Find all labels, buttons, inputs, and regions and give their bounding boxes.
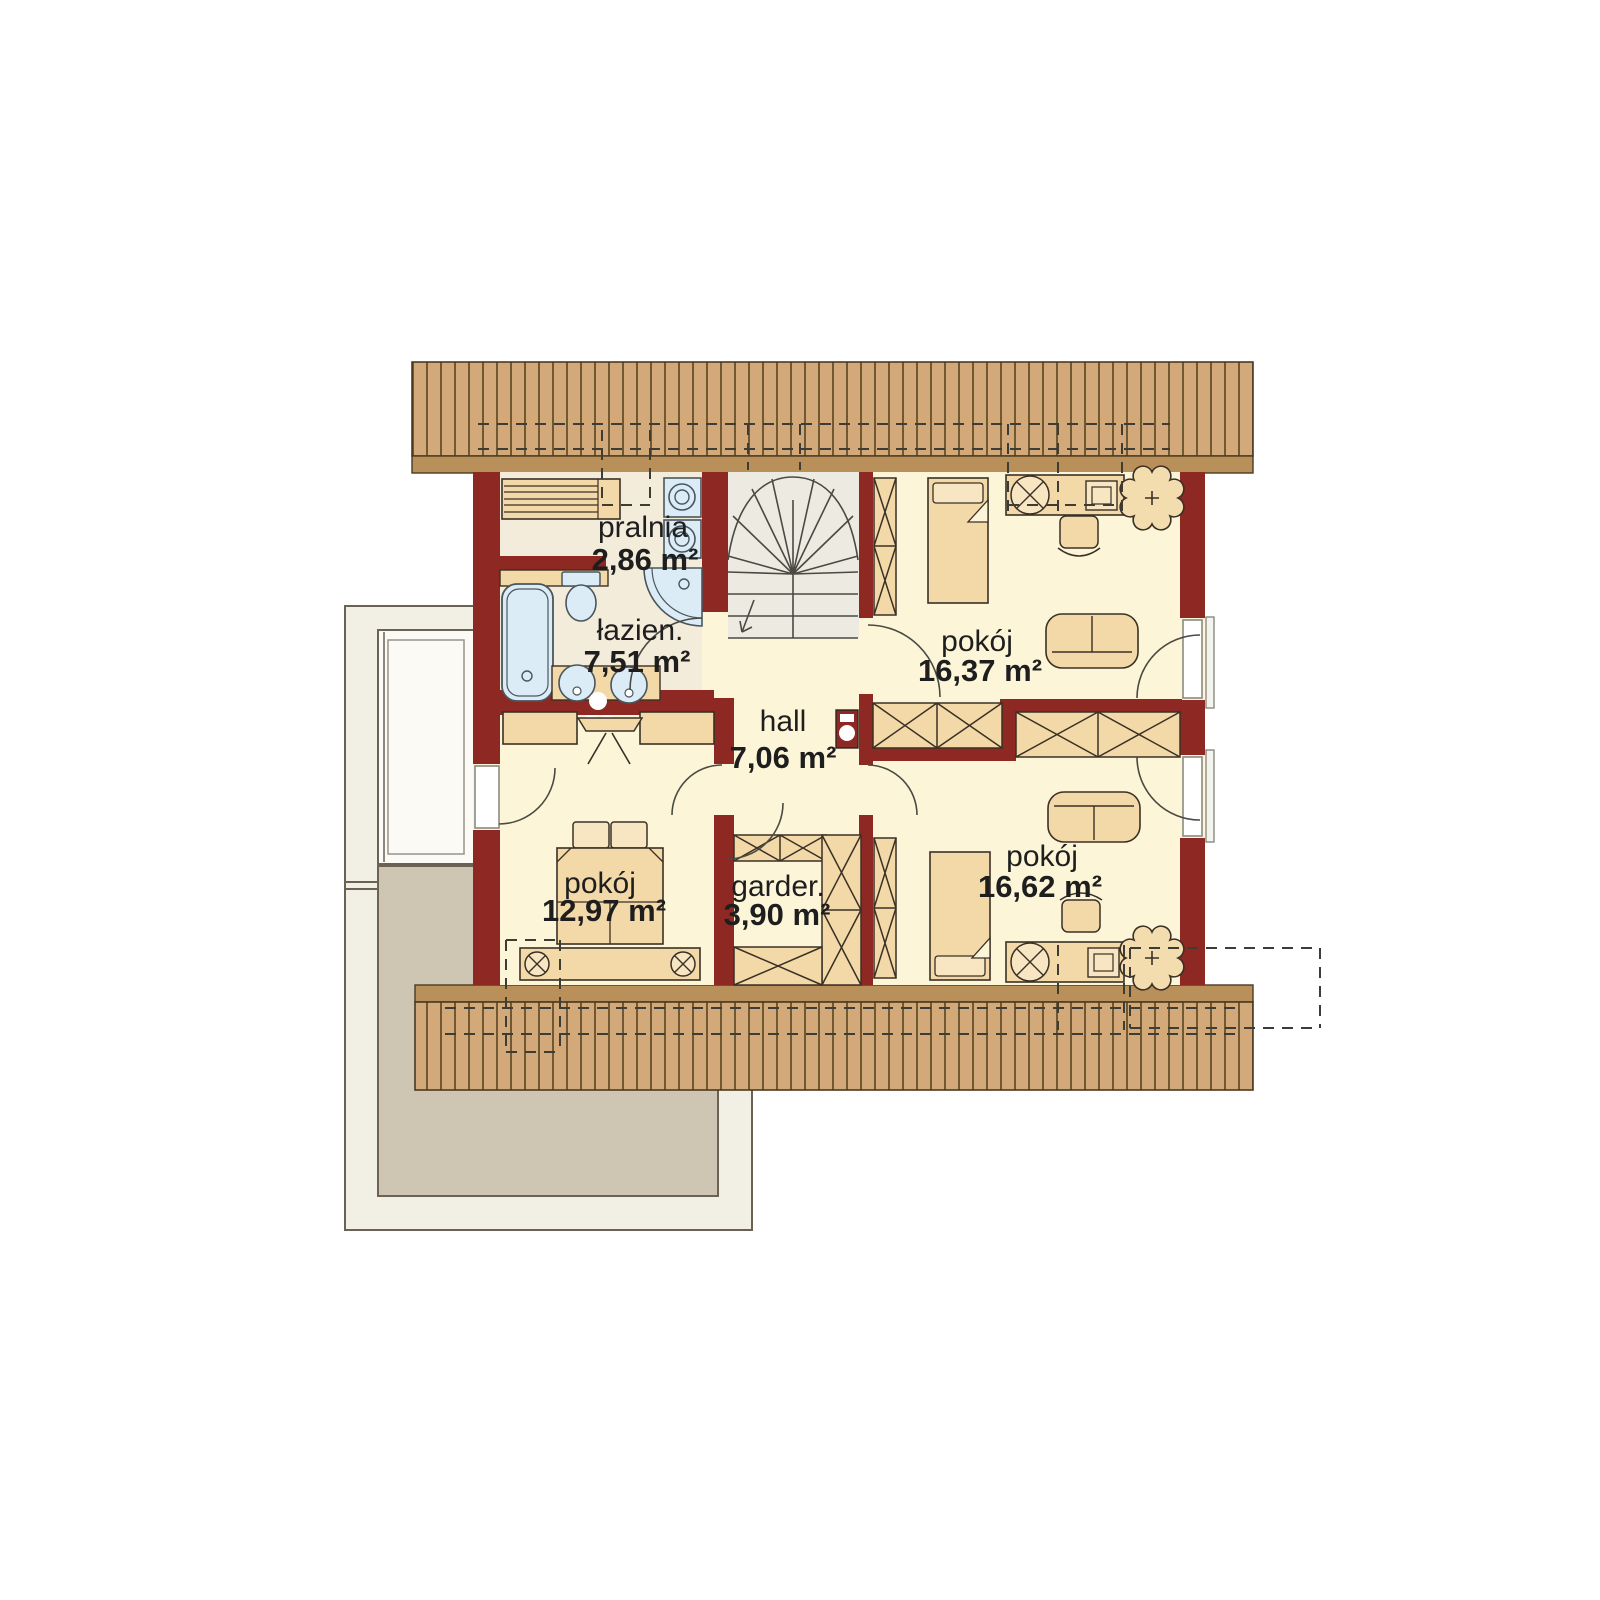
cabinet-icon bbox=[640, 712, 714, 744]
desk-icon bbox=[1006, 942, 1124, 982]
room-area: 12,97 m² bbox=[542, 893, 666, 928]
wardrobe-icon bbox=[734, 835, 826, 861]
window-bay-icon bbox=[378, 630, 474, 864]
room-area: 7,06 m² bbox=[730, 740, 837, 775]
floor-plan-drawing: pralnia 2,86 m² łazien. 7,51 m² hall 7,0… bbox=[0, 0, 1600, 1600]
wardrobe-icon bbox=[734, 947, 822, 985]
bathtub-icon bbox=[502, 584, 553, 701]
room-area: 16,37 m² bbox=[918, 653, 1042, 688]
wardrobe-icon bbox=[874, 838, 896, 978]
room-label-lazienka: łazien. 7,51 m² bbox=[584, 614, 691, 679]
bed-bench-icon bbox=[520, 948, 700, 980]
hall-radiator-icon bbox=[836, 710, 858, 748]
room-area: 3,90 m² bbox=[724, 897, 831, 932]
sofa-icon bbox=[1046, 614, 1138, 668]
room-label-pralnia: pralnia 2,86 m² bbox=[592, 511, 699, 577]
room-name: łazien. bbox=[597, 614, 684, 647]
ceiling-lamp-icon bbox=[1011, 476, 1049, 514]
wardrobe-icon bbox=[873, 703, 1002, 748]
floor-plan-page: pralnia 2,86 m² łazien. 7,51 m² hall 7,0… bbox=[0, 0, 1600, 1600]
room-area: 16,62 m² bbox=[978, 869, 1102, 904]
room-area: 2,86 m² bbox=[592, 542, 699, 577]
ceiling-lamp-icon bbox=[1011, 943, 1049, 981]
room-name: hall bbox=[760, 705, 807, 738]
room-area: 7,51 m² bbox=[584, 644, 691, 679]
desk-icon bbox=[1006, 475, 1124, 515]
roof-top bbox=[412, 362, 1253, 473]
mirror-icon bbox=[589, 692, 607, 710]
cabinet-icon bbox=[503, 712, 577, 744]
balcony-rail-icon bbox=[1206, 617, 1214, 842]
room-label-garderoba: garder. 3,90 m² bbox=[724, 870, 831, 932]
ceiling-lamp-icon bbox=[525, 952, 549, 976]
roof-bottom bbox=[415, 985, 1253, 1090]
single-bed-icon bbox=[928, 478, 988, 603]
sofa-icon bbox=[1048, 792, 1140, 842]
computer-icon bbox=[1088, 948, 1119, 977]
ceiling-lamp-icon bbox=[671, 952, 695, 976]
room-name: pralnia bbox=[598, 511, 688, 544]
wardrobe-icon bbox=[874, 478, 896, 615]
wardrobe-icon bbox=[1016, 712, 1180, 757]
